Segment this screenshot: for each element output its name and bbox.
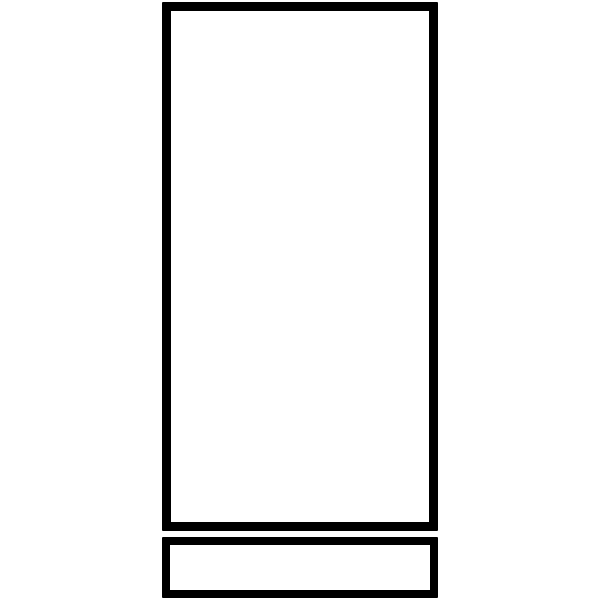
drawing-canvas [0,0,600,600]
base-panel-rect [162,537,438,598]
main-panel-rect [162,2,438,531]
